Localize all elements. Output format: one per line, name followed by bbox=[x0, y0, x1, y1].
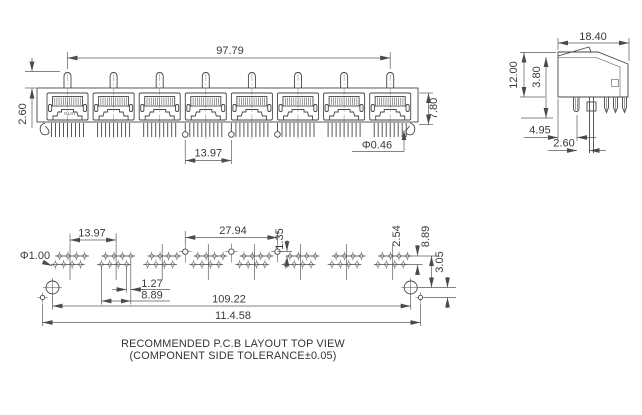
caption-line2: (COMPONENT SIDE TOLERANCE±0.05) bbox=[129, 350, 336, 362]
dim-overall-span: 11.4.58 bbox=[43, 304, 421, 327]
rj45-port bbox=[139, 73, 180, 140]
caption-line1: RECOMMENDED P.C.B LAYOUT TOP VIEW bbox=[121, 338, 345, 350]
pcb-layout-view: 13.97 27.94 1.35 Φ1.00 1.27 bbox=[20, 225, 456, 326]
svg-text:109.22: 109.22 bbox=[212, 294, 246, 306]
dim-mount-hole-span: 109.22 bbox=[53, 294, 411, 310]
connector-drawing: GLGI 97.79 2.60 7.80 bbox=[0, 0, 642, 415]
pin-cluster bbox=[143, 244, 181, 280]
pin-cluster bbox=[374, 244, 412, 280]
dim-cluster-pitch: 13.97 bbox=[70, 228, 116, 244]
svg-text:2.60: 2.60 bbox=[17, 103, 29, 124]
pin-cluster bbox=[51, 244, 89, 280]
dim-post-pitch: 27.94 bbox=[185, 225, 277, 244]
rj45-port bbox=[278, 73, 319, 140]
pin-cluster bbox=[97, 244, 135, 280]
mount-hole-right bbox=[401, 278, 420, 297]
svg-text:27.94: 27.94 bbox=[219, 225, 247, 237]
svg-text:1.35: 1.35 bbox=[274, 228, 286, 249]
pin-cluster bbox=[189, 244, 227, 280]
aux-hole-right bbox=[416, 293, 426, 303]
dim-post-row-offset: 1.35 bbox=[274, 228, 292, 268]
side-view: 18.40 12.00 3.80 4.95 2.60 bbox=[508, 31, 629, 153]
svg-text:Φ1.00: Φ1.00 bbox=[20, 250, 50, 262]
contact-window bbox=[612, 80, 619, 87]
aux-hole-left bbox=[38, 293, 48, 303]
dim-hole-diameter: Φ1.00 bbox=[20, 250, 52, 266]
rj45-port bbox=[231, 73, 272, 140]
front-post bbox=[229, 123, 235, 137]
dim-overall-width: 97.79 bbox=[68, 45, 391, 69]
post-hole bbox=[179, 244, 192, 263]
side-pin bbox=[605, 97, 609, 113]
dim-depth: 18.40 bbox=[558, 31, 629, 61]
latch-lever bbox=[558, 47, 591, 56]
svg-text:13.97: 13.97 bbox=[78, 228, 106, 240]
side-body-outline bbox=[558, 52, 628, 97]
svg-text:8.89: 8.89 bbox=[420, 226, 432, 247]
svg-text:13.97: 13.97 bbox=[195, 148, 223, 160]
dim-port-pitch: 13.97 bbox=[185, 140, 231, 164]
dim-inner-height: 3.80 bbox=[521, 57, 553, 118]
svg-text:1.27: 1.27 bbox=[141, 278, 162, 290]
dim-aux-hole-offset: 3.05 bbox=[425, 251, 457, 308]
svg-text:11.4.58: 11.4.58 bbox=[215, 310, 251, 322]
rj45-port bbox=[324, 73, 365, 140]
svg-text:4.95: 4.95 bbox=[529, 125, 550, 137]
svg-text:3.80: 3.80 bbox=[531, 66, 543, 87]
svg-text:18.40: 18.40 bbox=[579, 31, 607, 43]
front-view: GLGI 97.79 2.60 7.80 bbox=[17, 45, 440, 164]
side-pin bbox=[623, 97, 627, 113]
post-hole bbox=[225, 244, 238, 263]
port-logo: GLGI bbox=[64, 111, 75, 116]
svg-text:8.89: 8.89 bbox=[141, 290, 162, 302]
dim-port-height: 7.80 bbox=[419, 93, 440, 125]
rj45-port: GLGI bbox=[47, 73, 88, 140]
pin-cluster bbox=[328, 244, 366, 280]
svg-text:Φ0.46: Φ0.46 bbox=[362, 140, 392, 152]
pin-cluster bbox=[235, 244, 273, 280]
ground-tab-left bbox=[40, 123, 49, 135]
svg-text:3.05: 3.05 bbox=[434, 251, 446, 272]
snap-post bbox=[574, 97, 580, 112]
svg-text:2.54: 2.54 bbox=[391, 225, 403, 246]
rj45-port bbox=[93, 73, 134, 140]
svg-text:97.79: 97.79 bbox=[216, 45, 244, 57]
mount-hole-left bbox=[43, 278, 62, 297]
technical-drawing-sheet: GLGI 97.79 2.60 7.80 bbox=[0, 0, 642, 415]
dim-pin-offset-a: 4.95 bbox=[524, 99, 596, 141]
front-post bbox=[275, 123, 281, 137]
svg-text:7.80: 7.80 bbox=[428, 98, 440, 119]
rj45-port bbox=[370, 73, 411, 140]
front-post bbox=[182, 123, 188, 137]
side-pin bbox=[614, 97, 618, 113]
svg-text:12.00: 12.00 bbox=[508, 61, 520, 89]
rj45-port bbox=[185, 73, 226, 140]
svg-text:2.60: 2.60 bbox=[553, 138, 574, 150]
ground-tab-right bbox=[406, 123, 415, 135]
through-pin bbox=[587, 97, 596, 153]
